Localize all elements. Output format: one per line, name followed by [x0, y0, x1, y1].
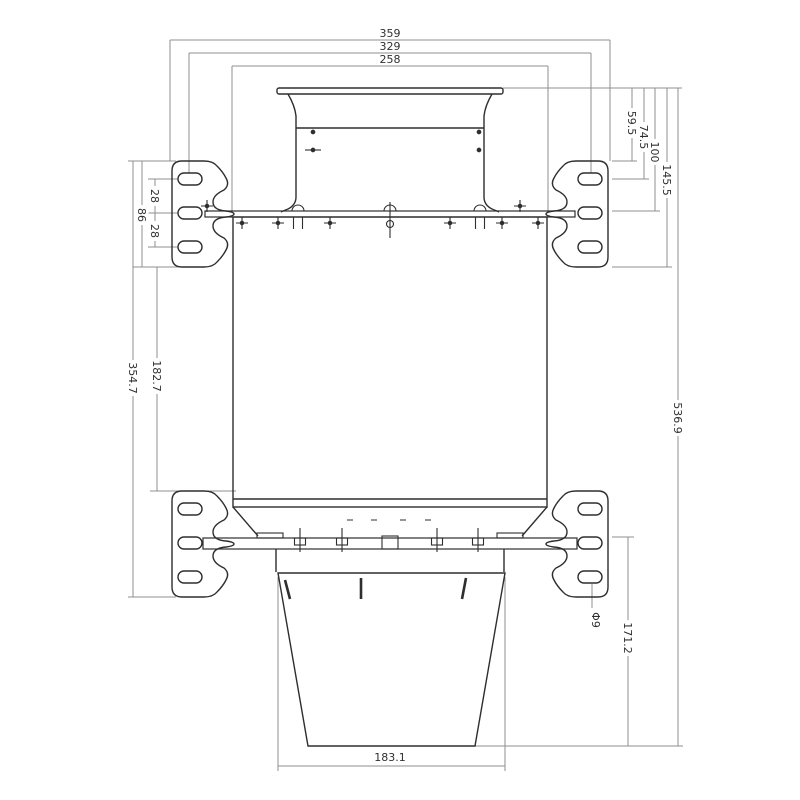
part-geometry: [172, 88, 608, 746]
dim-label-100: 100: [648, 139, 662, 165]
dim-label-145-5: 145.5: [660, 162, 674, 198]
dim-label-183-1: 183.1: [374, 751, 406, 764]
dim-text-phi9: Φ9: [589, 612, 602, 628]
bracket-outline: [172, 161, 234, 267]
bracket-slot: [178, 207, 202, 219]
bucket-ticks: [285, 578, 466, 599]
rivet-dot: [477, 130, 481, 134]
dimension-lines: [128, 40, 683, 771]
dim-label-182-7: 182.7: [150, 358, 164, 394]
cross-marks: [201, 200, 544, 229]
dim-label-359: 359: [380, 27, 401, 40]
drawing-canvas: 359 329 258 183.1 59.5 74.5 100 145.5 53…: [0, 0, 800, 800]
dim-label-86: 86: [135, 205, 149, 225]
technical-drawing: 359 329 258 183.1 59.5 74.5 100 145.5 53…: [0, 0, 800, 800]
dim-text-145-5: 145.5: [660, 164, 673, 196]
dim-text-100: 100: [648, 142, 661, 163]
bucket: [278, 573, 505, 746]
rivet-dot: [477, 148, 481, 152]
dim-text-182-7: 182.7: [150, 360, 163, 392]
lower-rail-tab: [497, 533, 523, 538]
dim-label-phi9: Φ9: [589, 609, 603, 631]
bell-left-side: [281, 94, 296, 212]
dim-label-59-5: 59.5: [625, 108, 639, 138]
mount-bracket-top-right: [546, 161, 608, 267]
dim-text-28-lower: 28: [148, 224, 161, 238]
dim-text-28-upper: 28: [148, 189, 161, 203]
bell-right-side: [484, 94, 499, 212]
dim-text-536-9: 536.9: [671, 402, 684, 434]
dim-label-28-lower: 28: [148, 221, 162, 241]
dim-label-354-7: 354.7: [126, 360, 140, 396]
body-taper: [233, 507, 547, 536]
dim-label-171-2: 171.2: [621, 620, 635, 656]
collar: [276, 549, 504, 572]
bracket-slot: [178, 173, 202, 185]
dim-label-258: 258: [380, 53, 401, 66]
mount-bracket: [172, 161, 234, 267]
dim-label-28-upper: 28: [148, 186, 162, 206]
dim-text-86: 86: [135, 208, 148, 222]
dim-text-171-2: 171.2: [621, 622, 634, 654]
main-body: [233, 217, 547, 507]
dim-text-354-7: 354.7: [126, 362, 139, 394]
dimension-labels: 359 329 258 183.1 59.5 74.5 100 145.5 53…: [126, 27, 685, 764]
dim-label-329: 329: [380, 40, 401, 53]
dim-label-536-9: 536.9: [671, 400, 685, 436]
lower-rail-tab: [257, 533, 283, 538]
dim-text-59-5: 59.5: [625, 111, 638, 136]
rivet-dot: [311, 130, 315, 134]
lower-rail: [203, 538, 577, 549]
dim-line-329: [189, 53, 591, 173]
bracket-slot: [178, 241, 202, 253]
dim-line-183-1: [278, 577, 505, 771]
top-flange: [277, 88, 503, 94]
